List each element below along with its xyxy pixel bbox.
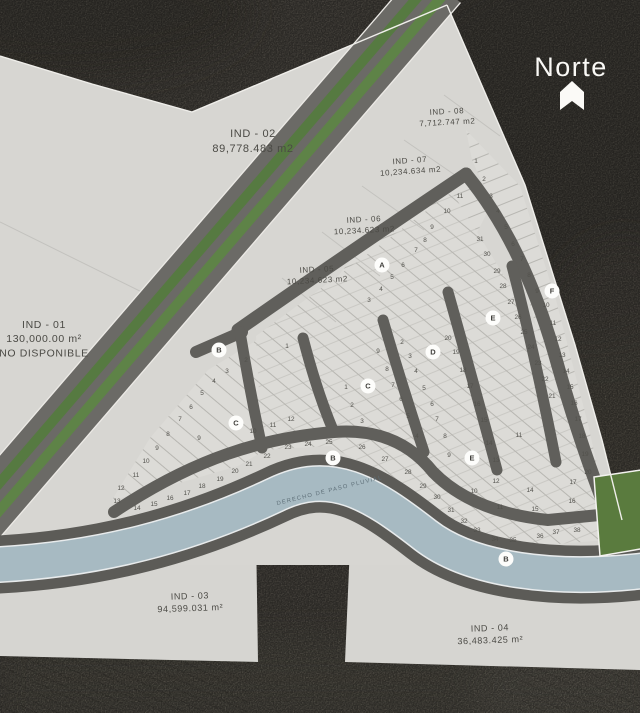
lot-number: 5 — [390, 274, 394, 281]
lot-number: 6 — [401, 262, 405, 269]
lot-number: 5 — [200, 390, 204, 397]
lot-number: 12 — [492, 478, 500, 485]
block-marker-letter: A — [379, 261, 385, 270]
block-marker-letter: E — [469, 454, 474, 463]
lot-number: 4 — [414, 368, 418, 375]
lot-number: 2 — [482, 176, 486, 183]
lot-number: 19 — [581, 451, 589, 458]
lot-number: 9 — [447, 452, 451, 459]
lot-number: 6 — [430, 401, 434, 408]
lot-number: 4 — [415, 433, 419, 440]
lot-number: 1 — [474, 158, 478, 165]
lot-number: 17 — [569, 479, 577, 486]
lot-number: 18 — [459, 367, 467, 374]
parcel-label-line: IND - 06 — [346, 214, 381, 225]
lot-number: 9 — [197, 435, 201, 442]
lot-number: 11 — [516, 432, 523, 439]
lot-number: 5 — [422, 385, 426, 392]
lot-number: 16 — [568, 498, 576, 505]
lot-number: 13 — [113, 498, 121, 505]
block-marker-e[interactable]: E — [465, 451, 480, 466]
block-marker-b[interactable]: B — [326, 451, 341, 466]
lot-number: 1 — [285, 343, 289, 350]
green-lot[interactable] — [594, 470, 640, 556]
lot-number: 15 — [480, 417, 488, 424]
lot-number: 31 — [476, 236, 484, 243]
lot-number: 21 — [245, 461, 253, 468]
lot-number: 20 — [584, 469, 592, 476]
lot-number: 8 — [166, 431, 170, 438]
lot-number: 27 — [381, 456, 389, 463]
lot-number: 22 — [263, 453, 271, 460]
lot-number: 28 — [499, 283, 507, 290]
block-marker-letter: C — [233, 419, 239, 428]
block-marker-c[interactable]: C — [229, 416, 244, 431]
parcel-label-line: IND - 03 — [171, 590, 210, 601]
block-marker-d[interactable]: D — [426, 345, 441, 360]
block-marker-c[interactable]: C — [361, 379, 376, 394]
lot-number: 4 — [496, 208, 500, 215]
parcel-label-line: IND - 04 — [471, 622, 510, 633]
lot-number: 12 — [117, 485, 125, 492]
block-marker-letter: B — [216, 346, 222, 355]
lot-number: 7 — [435, 416, 439, 423]
lot-number: 5 — [406, 413, 410, 420]
lot-number: 32 — [460, 518, 468, 525]
lot-number: 4 — [379, 286, 383, 293]
lot-number: 11 — [457, 193, 464, 200]
lot-number: 1 — [344, 384, 348, 391]
block-marker-a[interactable]: A — [375, 258, 390, 273]
lot-number: 2 — [244, 357, 248, 364]
lot-number: 25 — [520, 329, 528, 336]
block-marker-e[interactable]: E — [486, 311, 501, 326]
lot-number: 15 — [531, 506, 539, 513]
lot-number: 7 — [391, 382, 395, 389]
lot-number: 3 — [225, 368, 229, 375]
block-marker-letter: E — [490, 314, 495, 323]
lot-number: 29 — [493, 268, 501, 275]
lot-number: 17 — [466, 383, 474, 390]
lot-number: 13 — [558, 352, 566, 359]
lot-number: 17 — [183, 490, 191, 497]
block-marker-b[interactable]: B — [499, 552, 514, 567]
lot-number: 37 — [552, 529, 560, 536]
parcel-label-line: IND - 01 — [22, 319, 66, 331]
lot-number: 20 — [231, 468, 239, 475]
lot-number: 38 — [573, 527, 581, 534]
lot-number: 36 — [536, 533, 544, 540]
lot-number: 12 — [287, 416, 295, 423]
site-plan-map: IND - 01130,000.00 m²NO DISPONIBLEIND - … — [0, 0, 640, 713]
block-marker-f[interactable]: F — [545, 284, 560, 299]
lot-number: 16 — [166, 495, 174, 502]
lot-number: 7 — [178, 416, 182, 423]
block-marker-letter: D — [430, 348, 436, 357]
lot-number: 3 — [360, 418, 364, 425]
lot-number: 7 — [414, 247, 418, 254]
lot-number: 23 — [534, 360, 542, 367]
lot-number: 3 — [489, 193, 493, 200]
lot-number: 30 — [433, 494, 441, 501]
lot-number: 22 — [541, 376, 549, 383]
block-marker-b[interactable]: B — [212, 343, 227, 358]
lot-number: 33 — [473, 527, 481, 534]
lot-number: 9 — [535, 288, 539, 295]
compass-label: Norte — [534, 52, 608, 82]
lot-number: 8 — [385, 366, 389, 373]
lot-number: 26 — [514, 314, 522, 321]
lot-number: 14 — [485, 440, 493, 447]
lot-number: 25 — [325, 439, 333, 446]
lot-number: 11 — [550, 320, 557, 327]
lot-number: 6 — [399, 396, 403, 403]
lot-number: 2 — [400, 339, 404, 346]
lot-number: 11 — [270, 422, 277, 429]
lot-number: 11 — [497, 504, 504, 511]
lot-number: 6 — [511, 241, 515, 248]
lot-number: 35 — [509, 537, 517, 544]
lot-number: 34 — [491, 536, 499, 543]
lot-number: 10 — [542, 302, 550, 309]
lot-number: 21 — [548, 393, 556, 400]
lot-number: 15 — [150, 501, 158, 508]
lot-number: 13 — [492, 457, 500, 464]
lot-number: 12 — [554, 336, 562, 343]
lot-number: 16 — [473, 401, 481, 408]
block-marker-letter: C — [365, 382, 371, 391]
lot-number: 8 — [443, 433, 447, 440]
lot-number: 29 — [419, 483, 427, 490]
lot-number: 16 — [570, 400, 578, 407]
lot-number: 10 — [443, 208, 451, 215]
lot-number: 31 — [447, 507, 455, 514]
lot-number: 2 — [350, 402, 354, 409]
lot-number: 15 — [566, 384, 574, 391]
lot-number: 28 — [404, 469, 412, 476]
parcel-label-line: IND - 02 — [230, 128, 276, 140]
lot-number: 26 — [358, 444, 366, 451]
lot-number: 11 — [133, 472, 140, 479]
block-marker-letter: B — [503, 555, 509, 564]
lot-number: 8 — [423, 237, 427, 244]
lot-number: 14 — [526, 487, 534, 494]
lot-number: 3 — [408, 353, 412, 360]
lot-number: 18 — [198, 483, 206, 490]
block-marker-letter: B — [330, 454, 336, 463]
lot-number: 4 — [212, 378, 216, 385]
block-marker-letter: F — [550, 287, 555, 296]
lot-number: 18 — [578, 433, 586, 440]
parcel-label-line: 89,778.483 m2 — [212, 143, 293, 155]
lot-number: 10 — [470, 488, 478, 495]
lot-number: 6 — [189, 404, 193, 411]
lot-number: 10 — [249, 428, 257, 435]
parcel-label-line: 130,000.00 m² — [6, 333, 82, 345]
lot-number: 14 — [562, 368, 570, 375]
lot-number: 24 — [527, 344, 535, 351]
lot-number: 20 — [444, 335, 452, 342]
lot-number: 19 — [216, 476, 224, 483]
lot-number: 9 — [376, 348, 380, 355]
lot-number: 5 — [504, 224, 508, 231]
lot-number: 23 — [284, 444, 292, 451]
parcel-label-line: NO DISPONIBLE — [0, 347, 89, 359]
lot-number: 19 — [452, 349, 460, 356]
lot-number: 14 — [133, 505, 141, 512]
lot-number: 17 — [574, 416, 582, 423]
lot-number: 9 — [430, 224, 434, 231]
parcel-label-line: IND - 05 — [299, 264, 334, 275]
lot-number: 9 — [155, 445, 159, 452]
lot-number: 3 — [367, 297, 371, 304]
lot-number: 7 — [520, 256, 524, 263]
lot-number: 27 — [507, 299, 515, 306]
master-plan-canvas: IND - 01130,000.00 m²NO DISPONIBLEIND - … — [0, 0, 640, 713]
lot-number: 30 — [483, 251, 491, 258]
parcel-label-line: IND - 08 — [429, 106, 464, 117]
lot-number: 10 — [142, 458, 150, 465]
lot-number: 24 — [304, 441, 312, 448]
lot-number: 8 — [527, 272, 531, 279]
